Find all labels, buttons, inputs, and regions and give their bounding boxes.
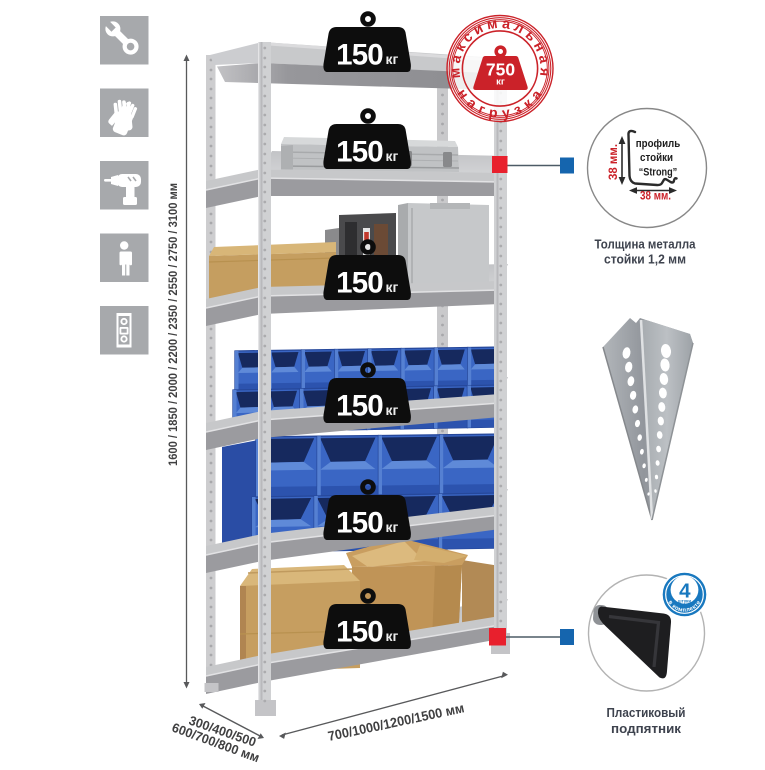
svg-text:штуки: штуки — [678, 598, 691, 603]
svg-text:1600 / 1850 / 2000 / 2200 / 23: 1600 / 1850 / 2000 / 2200 / 2350 / 2550 … — [168, 183, 180, 466]
svg-text:Пластиковый: Пластиковый — [607, 705, 686, 720]
svg-text:“Strong”: “Strong” — [639, 167, 678, 179]
svg-text:профиль: профиль — [636, 138, 681, 150]
svg-text:стойки 1,2 мм: стойки 1,2 мм — [604, 252, 686, 267]
svg-text:стойки: стойки — [640, 152, 673, 164]
svg-text:Толщина металла: Толщина металла — [595, 237, 697, 252]
svg-text:кг: кг — [496, 77, 505, 88]
svg-text:38 мм.: 38 мм. — [608, 144, 620, 180]
svg-text:подпятник: подпятник — [611, 721, 682, 736]
svg-text:38 мм.: 38 мм. — [640, 191, 671, 203]
